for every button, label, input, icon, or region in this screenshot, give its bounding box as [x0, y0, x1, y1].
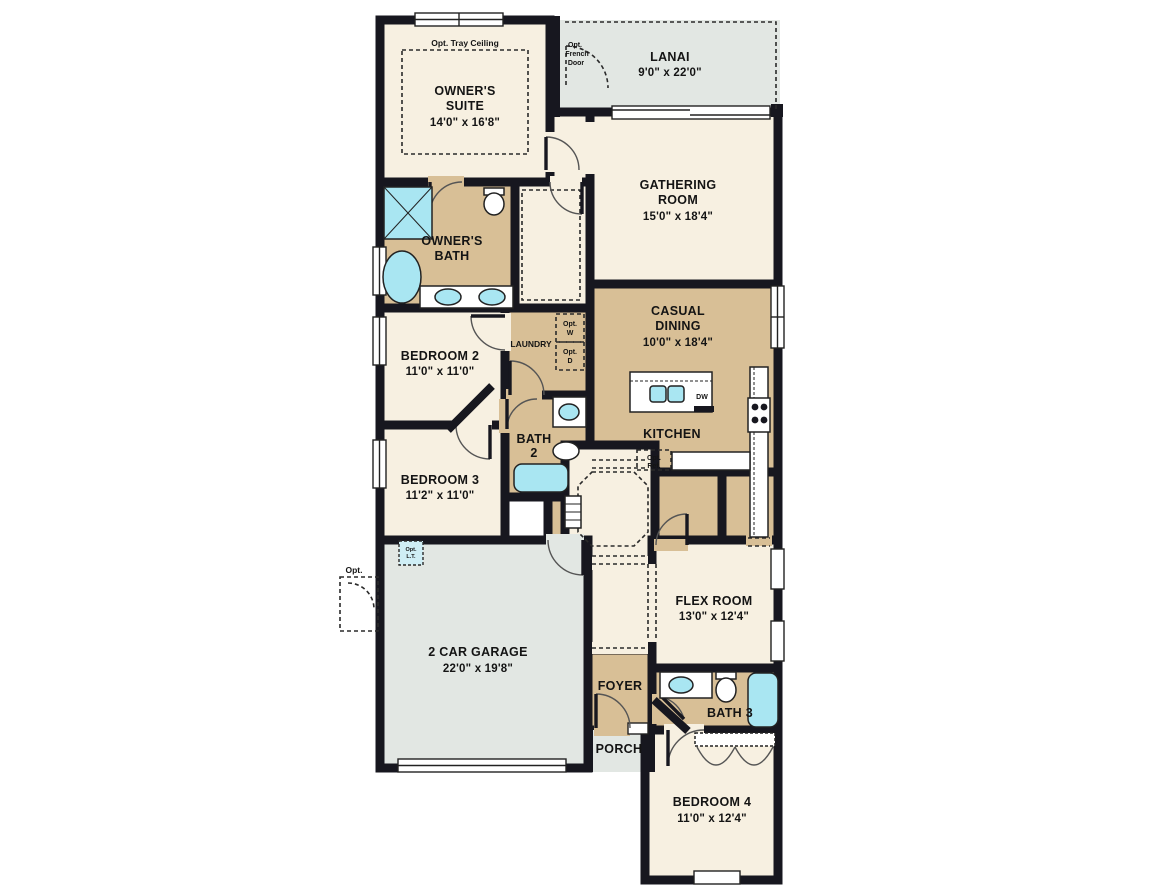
gallery-hall — [588, 562, 652, 650]
bath2-label: BATH — [517, 432, 552, 446]
front-door-sill — [628, 723, 648, 734]
sliding-door-lanai — [612, 106, 770, 119]
svg-text:L.T.: L.T. — [406, 554, 416, 560]
svg-text:W: W — [567, 330, 574, 337]
room-laundry — [505, 308, 590, 395]
svg-text:Door: Door — [568, 60, 585, 67]
laundry-label: LAUNDRY — [510, 339, 552, 349]
sink-icon-bath3 — [669, 677, 693, 693]
window-bedroom4 — [694, 871, 740, 884]
kitchen-sink-1 — [650, 386, 666, 402]
bedroom2-dims: 11'0" x 11'0" — [406, 366, 475, 378]
floor-plan: Opt. Tray Ceiling OWNER'S SUITE 14'0" x … — [0, 0, 1150, 890]
sink-icon-2 — [479, 289, 505, 305]
svg-text:BATH: BATH — [435, 249, 470, 263]
svg-text:D: D — [567, 358, 572, 365]
tub-icon-bath2 — [514, 464, 568, 492]
gathering-label: GATHERING — [640, 178, 717, 192]
casual-dining-dims: 10'0" x 18'4" — [643, 337, 713, 349]
gathering-dims: 15'0" x 18'4" — [643, 211, 713, 223]
opt-fridge-label: Opt. — [647, 455, 661, 462]
sink-icon-bath2 — [559, 404, 579, 420]
opt-washer-label: Opt. — [563, 321, 577, 328]
kitchen-counter-2 — [672, 452, 750, 470]
range-icon — [748, 398, 770, 432]
tray-ceiling-label: Opt. Tray Ceiling — [431, 38, 499, 48]
opt-french-door-label: Opt. — [568, 42, 582, 49]
svg-text:ROOM: ROOM — [658, 193, 698, 207]
bedroom3-dims: 11'2" x 11'0" — [406, 490, 475, 502]
garage-label: 2 CAR GARAGE — [428, 645, 527, 659]
flex-dims: 13'0" x 12'4" — [679, 611, 749, 623]
floor-plan-canvas: Opt. Tray Ceiling OWNER'S SUITE 14'0" x … — [0, 0, 1150, 890]
sink-icon-1 — [435, 289, 461, 305]
foyer-label: FOYER — [598, 679, 643, 693]
walls-and-floors — [380, 20, 780, 880]
svg-text:DINING: DINING — [655, 319, 701, 333]
kitchen-counter — [750, 367, 768, 537]
porch-wall-left — [584, 726, 593, 772]
toilet-icon-owners — [484, 193, 504, 215]
bedroom4-dims: 11'0" x 12'4" — [677, 813, 747, 825]
svg-text:SUITE: SUITE — [446, 99, 484, 113]
lanai-dims: 9'0" x 22'0" — [638, 67, 702, 79]
toilet-icon-bath2 — [553, 442, 579, 460]
svg-text:French: French — [565, 51, 588, 58]
garage-dims: 22'0" x 19'8" — [443, 663, 513, 675]
opt-laundry-tub — [399, 541, 423, 565]
window-flex-1 — [771, 549, 784, 589]
kitchen-sink-2 — [668, 386, 684, 402]
lanai-label: LANAI — [650, 50, 690, 64]
toilet-icon-bath3 — [716, 678, 736, 702]
lanai-wall-corner — [771, 104, 783, 117]
closet-bedroom4 — [695, 733, 775, 746]
opt-garage-side-door-swing — [348, 583, 374, 609]
flex-label: FLEX ROOM — [675, 594, 752, 608]
owners-suite-dims: 14'0" x 16'8" — [430, 117, 500, 129]
opt-laundry-tub-label: Opt. — [406, 547, 417, 553]
opt-garage-side-door-outline — [340, 577, 378, 631]
tub-icon-owners — [383, 251, 421, 303]
owners-bath-label: OWNER'S — [421, 234, 482, 248]
bath3-label: BATH 3 — [707, 706, 753, 720]
casual-dining-label: CASUAL — [651, 304, 705, 318]
opt-dryer-label: Opt. — [563, 349, 577, 356]
bedroom2-label: BEDROOM 2 — [401, 349, 479, 363]
bedroom3-label: BEDROOM 3 — [401, 473, 479, 487]
svg-text:Ref.: Ref. — [647, 463, 660, 470]
bedroom4-label: BEDROOM 4 — [673, 795, 751, 809]
opt-side-door-label: Opt. — [346, 565, 363, 575]
porch-label: PORCH — [596, 742, 643, 756]
svg-text:2: 2 — [530, 446, 537, 460]
window-flex-2 — [771, 621, 784, 661]
dishwasher-label: DW — [696, 394, 708, 401]
walk-in-closet — [515, 182, 590, 308]
owners-suite-label: OWNER'S — [434, 84, 495, 98]
kitchen-label: KITCHEN — [643, 427, 701, 441]
lanai-wall-left — [550, 16, 560, 117]
